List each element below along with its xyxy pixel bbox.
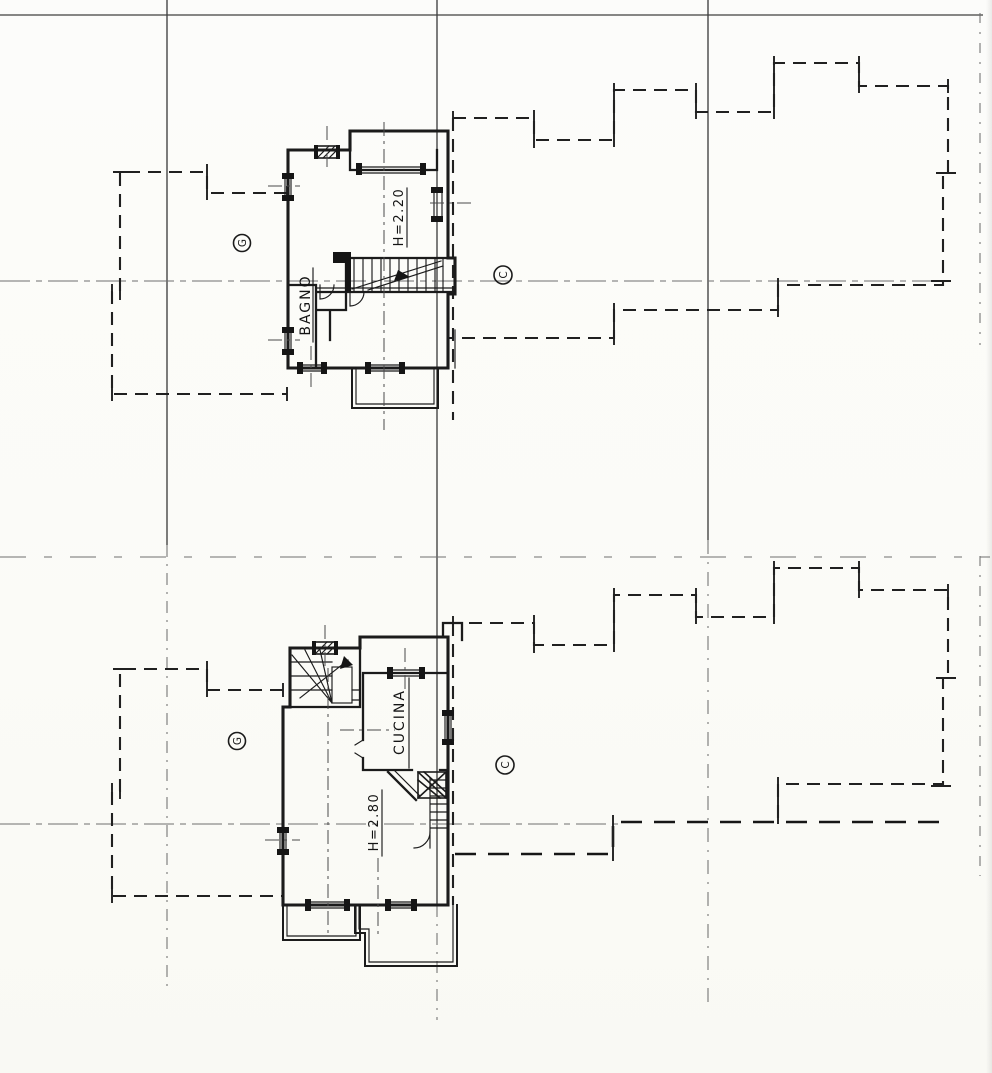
dashed-outline-path <box>112 669 283 896</box>
dashed-outline-corner-ticks <box>112 661 283 903</box>
stair-lower-edge <box>316 288 455 368</box>
scanned-floor-plan-sheet: H=2.20 BAGNO G C <box>0 0 992 1073</box>
upper-axis-letter-c: C <box>498 271 510 278</box>
dashed-outline-path <box>448 63 948 420</box>
dashed-outline-corner-ticks <box>112 164 287 401</box>
upper-right-dashed-outline <box>448 56 956 420</box>
dashed-outline-heavy-segment <box>448 822 939 854</box>
scan-edge-shadow <box>986 0 992 1073</box>
lower-floor-plan: CUCINA H=2.80 G C <box>229 623 515 966</box>
lower-plan-walls <box>283 623 462 905</box>
upper-axis-letter-g: G <box>237 239 249 247</box>
lower-plan-balconies <box>283 905 457 966</box>
lower-axis-letter-g: G <box>232 737 244 745</box>
window-axis-lines <box>265 625 405 935</box>
stair-newel <box>332 667 352 703</box>
dashed-outline-path <box>112 172 287 394</box>
cucina-label: CUCINA <box>392 689 408 755</box>
lower-door-arc <box>414 832 430 848</box>
upper-plan-balcony <box>352 368 438 408</box>
lower-room-height-label: H=2.80 <box>367 793 382 852</box>
lower-plan-labels: CUCINA H=2.80 G C <box>229 678 515 856</box>
grid-axis-lines <box>0 0 990 1020</box>
dashed-outline-corner-ticks <box>448 56 956 345</box>
lower-right-dashed-outline <box>448 561 956 905</box>
lower-grid-marker-right: C <box>496 756 514 774</box>
upper-room-height-label: H=2.20 <box>392 188 407 247</box>
floor-plan-drawing: H=2.20 BAGNO G C <box>0 0 992 1073</box>
lower-grid-marker-left: G <box>229 733 246 750</box>
upper-floor-plan: H=2.20 BAGNO G C <box>234 122 513 430</box>
stair-edge-block <box>345 258 351 292</box>
dashed-outline-corner-ticks <box>448 561 956 861</box>
upper-grid-marker-left: G <box>234 235 251 252</box>
room-door-arc <box>350 292 364 306</box>
cucina-door-ticks <box>352 690 363 758</box>
lower-axis-letter-c: C <box>500 761 512 768</box>
winder-treads <box>292 650 332 703</box>
upper-left-dashed-outline <box>112 164 287 401</box>
right-balcony-outer <box>355 905 457 966</box>
lower-plan-axis-ticks <box>265 625 405 935</box>
balcony-parapet-outer <box>352 368 438 408</box>
lower-left-dashed-outline <box>112 661 283 903</box>
upper-plan-labels: H=2.20 BAGNO G C <box>234 188 513 342</box>
right-balcony-inner <box>359 905 453 962</box>
bagno-label: BAGNO <box>298 274 314 335</box>
